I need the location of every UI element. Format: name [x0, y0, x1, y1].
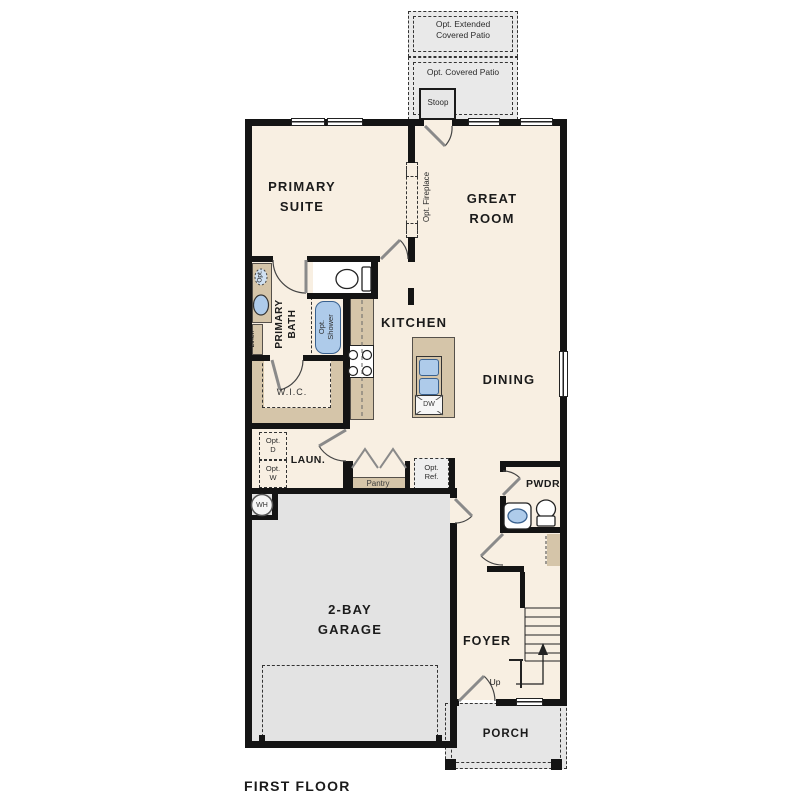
- opt-fireplace-bottom-tick: [406, 223, 418, 238]
- wall-suite-greatroom-upper: [408, 119, 415, 163]
- island-sink-basin-top: [419, 359, 439, 376]
- porch-post-left: [445, 759, 456, 770]
- stoop-door-opening: [424, 120, 452, 126]
- foyer-label: FOYER: [459, 632, 515, 651]
- wall-suite-bottom-right: [307, 256, 380, 262]
- wall-optref-right: [449, 458, 455, 490]
- primary-suite-label: PRIMARY SUITE: [248, 177, 356, 217]
- wall-wic-top-right: [303, 355, 347, 361]
- wall-waterheater-bottom: [245, 515, 278, 520]
- water-closet-floor: [313, 262, 371, 293]
- kitchen-label: KITCHEN: [381, 313, 445, 333]
- window-greatroom-1: [468, 118, 500, 126]
- wall-suite-bottom-left: [245, 256, 273, 262]
- opt-fireplace-label: Opt. Fireplace: [422, 157, 434, 237]
- wall-powder-top: [500, 461, 567, 467]
- wall-exterior-right: [560, 119, 567, 705]
- porch-post-right: [551, 759, 562, 770]
- primary-bath-label: PRIMARY BATH: [273, 292, 301, 356]
- wall-kitchen-stub: [408, 288, 414, 305]
- wall-bath-kitchen-upper: [343, 293, 350, 429]
- laundry-label: LAUN.: [286, 453, 330, 469]
- dining-label: DINING: [479, 370, 539, 390]
- wic-label: W.I.C.: [262, 386, 322, 400]
- garage-door-outline: [262, 665, 438, 742]
- window-primary-suite-1: [291, 118, 325, 126]
- wall-closet-foyer: [487, 566, 524, 572]
- opt-fireplace-top-tick: [406, 162, 418, 177]
- water-heater-label: WH: [252, 501, 272, 512]
- opt-covered-patio-label: Opt. Covered Patio: [408, 67, 518, 78]
- wall-powder-bottom: [500, 527, 567, 533]
- wall-stair-left: [520, 572, 525, 608]
- wall-powder-left-upper: [500, 461, 506, 472]
- porch-label: PORCH: [474, 726, 538, 743]
- window-dining: [559, 351, 568, 397]
- stoop-label: Stoop: [420, 98, 456, 108]
- wall-wic-top-left: [245, 355, 270, 361]
- window-greatroom-2: [520, 118, 553, 126]
- linen-label: Linen: [248, 324, 258, 354]
- island-sink-basin-bottom: [419, 378, 439, 395]
- wall-suite-greatroom-lower: [408, 237, 415, 262]
- first-floor-plan: Opt. Extended Covered Patio Opt. Covered…: [0, 0, 810, 810]
- wall-waterheater-right: [272, 488, 278, 518]
- garage-label: 2-BAY GARAGE: [308, 600, 392, 640]
- opt-extended-patio-label: Opt. Extended Covered Patio: [408, 19, 518, 40]
- window-primary-suite-2: [327, 118, 363, 126]
- opt-shower-label: Opt. Shower: [317, 305, 337, 349]
- great-room-label: GREAT ROOM: [450, 189, 534, 229]
- stairs-up-label: Up: [486, 676, 504, 689]
- wall-garage-right-lower: [450, 523, 457, 748]
- plan-title: FIRST FLOOR: [244, 776, 404, 797]
- wall-wic-laundry: [245, 423, 349, 429]
- wic-shelf-edge-dashed: [262, 358, 331, 408]
- range: [346, 345, 374, 378]
- opt-refrigerator-label: Opt. Ref.: [414, 463, 449, 482]
- dishwasher-label: DW: [419, 400, 439, 411]
- pantry-label: Pantry: [350, 478, 406, 490]
- window-foyer-front: [516, 698, 543, 706]
- wall-garage-bottom: [245, 741, 457, 748]
- wic-shelf-right: [331, 361, 343, 408]
- wall-garage-door-stub-right: [436, 735, 442, 742]
- coat-closet-shelf: [547, 534, 560, 566]
- wic-shelf-bottom: [252, 408, 343, 423]
- opt-washer-label: Opt. W: [259, 464, 287, 483]
- wall-garage-door-stub-left: [259, 735, 265, 742]
- opt-second-sink-label: Opt.: [256, 267, 265, 287]
- opt-dryer-label: Opt. D: [259, 436, 287, 455]
- powder-label: PWDR: [517, 477, 569, 493]
